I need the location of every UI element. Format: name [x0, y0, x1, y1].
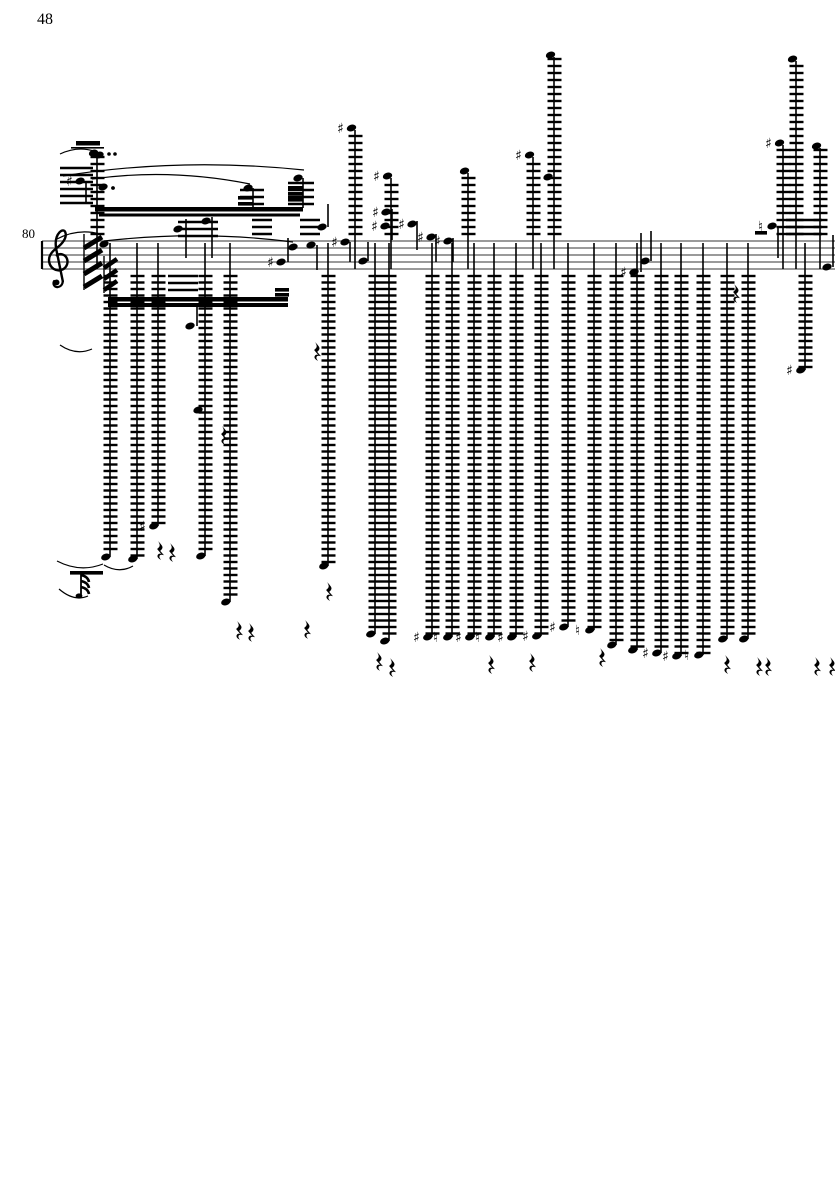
quarter-rest-icon [765, 657, 772, 676]
beamlet [238, 202, 253, 206]
augmentation-dot [107, 152, 111, 156]
notehead [379, 221, 390, 230]
sharp-icon: ♯ [373, 169, 380, 185]
slur [92, 175, 250, 184]
sharp-icon: ♯ [139, 519, 146, 535]
notehead [275, 257, 286, 266]
quarter-rest-icon [389, 658, 396, 677]
sharp-icon: ♯ [455, 630, 462, 646]
notehead [184, 321, 195, 330]
tenuto-line [71, 147, 104, 149]
notehead [316, 222, 327, 231]
notehead [821, 262, 832, 271]
notehead [292, 173, 303, 182]
quarter-rest-icon [304, 620, 311, 639]
sharp-icon: ♯ [662, 649, 669, 665]
notehead [766, 221, 777, 230]
quarter-rest-icon [488, 655, 495, 674]
natural-icon: ♮ [575, 623, 580, 639]
sharp-icon: ♯ [549, 620, 556, 636]
quarter-rest-icon [814, 657, 821, 676]
quarter-rest-icon [326, 582, 333, 601]
slur [104, 565, 133, 570]
beam [95, 207, 303, 212]
tremolo-slash [84, 237, 102, 248]
notehead [172, 224, 183, 233]
augmentation-dot [113, 152, 117, 156]
marcato-bar [76, 141, 100, 146]
sharp-icon: ♯ [417, 230, 424, 246]
notehead [357, 256, 368, 265]
notehead [97, 182, 108, 191]
quarter-rest-icon [376, 652, 383, 671]
sharp-icon: ♯ [413, 630, 420, 646]
sharp-icon: ♯ [515, 148, 522, 164]
slur [63, 165, 304, 176]
sharp-icon: ♯ [331, 235, 338, 251]
quarter-rest-icon [248, 623, 255, 642]
notehead [242, 183, 253, 192]
notehead [76, 593, 83, 598]
slur [57, 561, 103, 568]
sharp-icon: ♯ [786, 363, 793, 379]
notehead [74, 176, 85, 185]
sharp-icon: ♯ [434, 234, 441, 250]
sharp-icon: ♯ [522, 629, 529, 645]
beamlet [275, 293, 289, 297]
slur [60, 345, 92, 352]
beam [99, 214, 300, 217]
quarter-rest-icon [157, 541, 164, 560]
quarter-rest-icon [236, 621, 243, 640]
sharp-icon: ♯ [765, 136, 772, 152]
beamlet [288, 186, 303, 190]
natural-icon: ♮ [684, 648, 689, 664]
sharp-icon: ♯ [497, 630, 504, 646]
sharp-icon: ♯ [267, 255, 274, 271]
sharp-icon: ♯ [620, 265, 627, 281]
beamlet [288, 192, 303, 196]
sharp-icon: ♯ [398, 217, 405, 233]
notehead [339, 237, 350, 246]
treble-clef-icon [54, 280, 60, 286]
beamlet [288, 198, 303, 202]
quarter-rest-icon [829, 657, 835, 676]
notehead [380, 207, 391, 216]
augmentation-dot [111, 186, 115, 190]
quarter-rest-icon [724, 655, 731, 674]
sharp-icon: ♯ [66, 174, 73, 190]
notehead [406, 219, 417, 228]
quarter-rest-icon [169, 543, 176, 562]
music-notation-svg: ♯♯♯♯♯♯♮♯♮♯♯♯♮♯♯♮♯♯♯♯♯♯♯♯♯♯♮ [0, 0, 835, 1181]
quarter-rest-icon [529, 653, 536, 672]
quarter-rest-icon [314, 342, 321, 361]
beamlet [275, 288, 289, 292]
notehead [287, 242, 298, 251]
sharp-icon: ♯ [371, 219, 378, 235]
sharp-icon: ♯ [337, 121, 344, 137]
quarter-rest-icon [221, 426, 228, 445]
slur [59, 589, 88, 598]
beamlet [238, 196, 253, 200]
sharp-icon: ♯ [642, 646, 649, 662]
beam [108, 297, 288, 302]
notehead [200, 216, 211, 225]
quarter-rest-icon [599, 648, 606, 667]
beamlet [70, 571, 103, 575]
slur [57, 232, 100, 239]
notehead [542, 172, 553, 181]
sheet-music-page: 48 80 ♯♯♯♯♯♯♮♯♮♯♯♯♮♯♯♮♯♯♯♯♯♯♯♯♯♯♮ [0, 0, 835, 1181]
tremolo-slash [84, 276, 102, 287]
natural-icon: ♮ [758, 219, 763, 235]
natural-icon: ♮ [475, 630, 480, 646]
quarter-rest-icon [733, 284, 740, 303]
quarter-rest-icon [756, 657, 763, 676]
natural-icon: ♮ [433, 630, 438, 646]
beam [108, 303, 288, 307]
